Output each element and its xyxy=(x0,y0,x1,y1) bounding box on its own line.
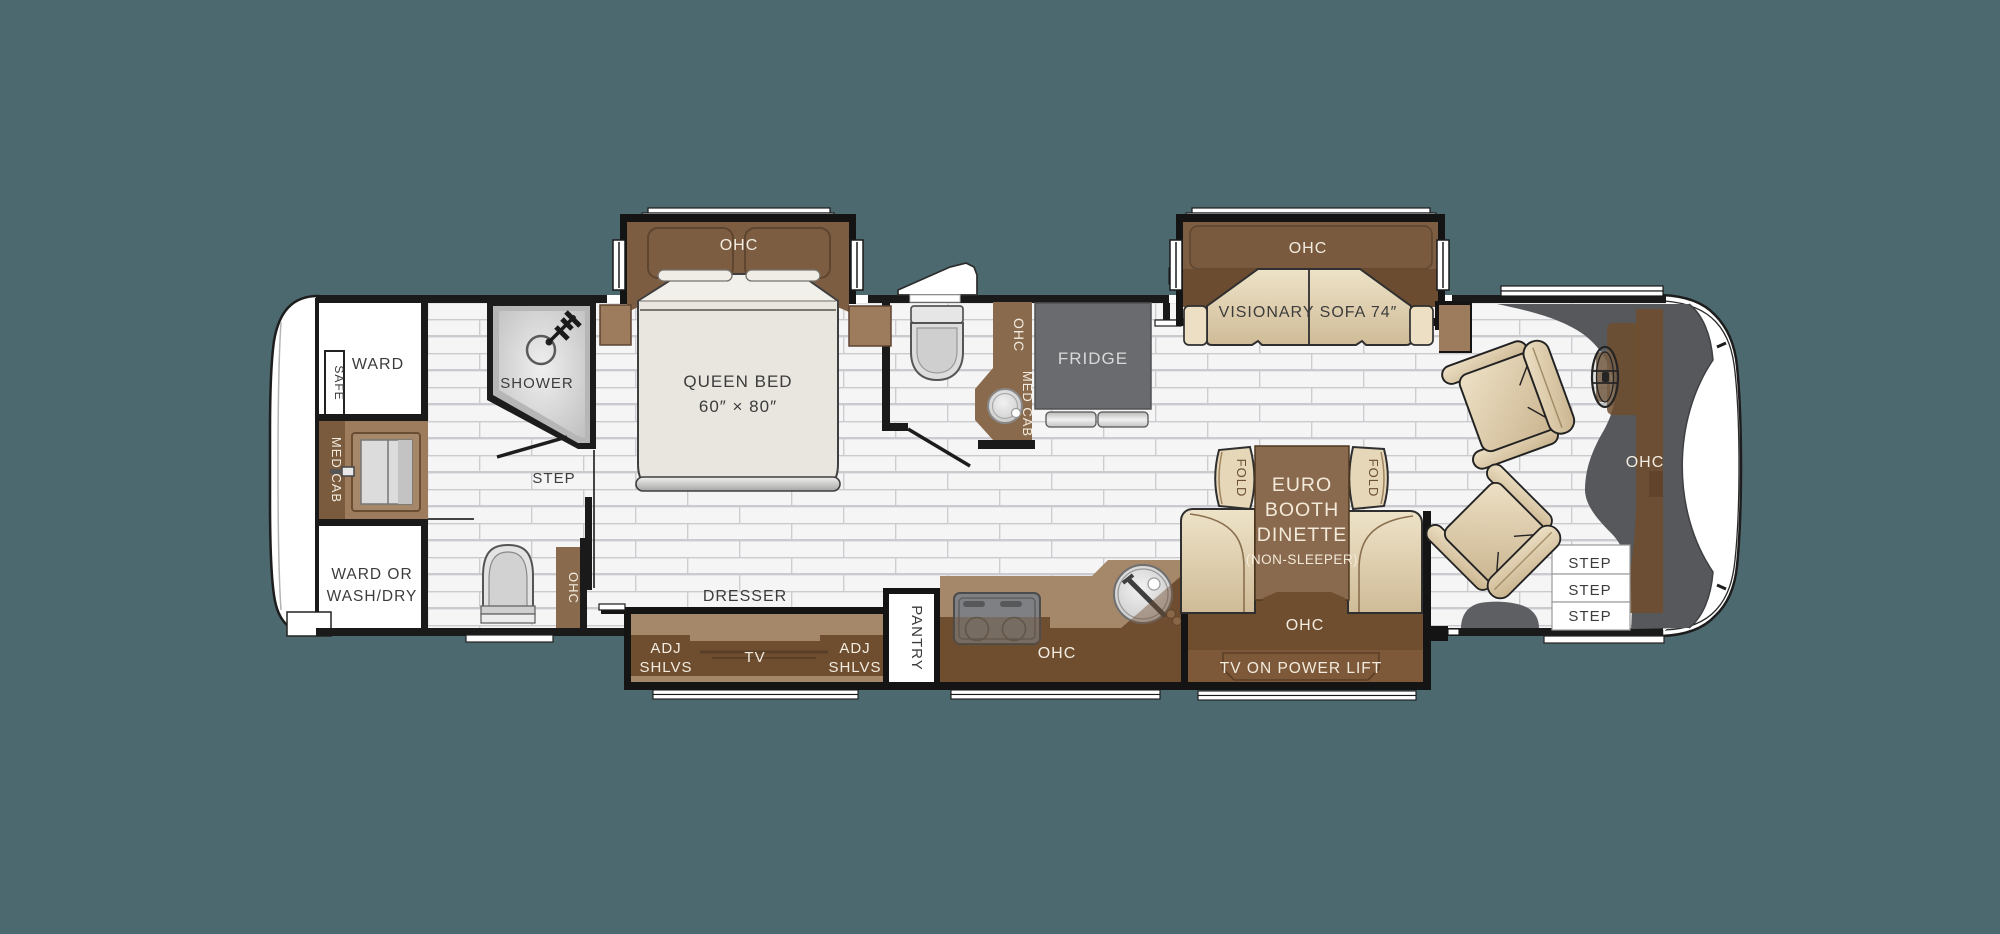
svg-text:FOLD: FOLD xyxy=(1366,459,1381,498)
svg-text:OHC: OHC xyxy=(566,572,581,604)
svg-text:PANTRY: PANTRY xyxy=(908,605,925,670)
svg-text:BOOTH: BOOTH xyxy=(1265,499,1339,521)
svg-text:OHC: OHC xyxy=(1626,454,1665,471)
svg-text:EURO: EURO xyxy=(1272,474,1332,496)
svg-text:60″ × 80″: 60″ × 80″ xyxy=(699,397,777,416)
svg-text:STEP: STEP xyxy=(532,470,575,487)
svg-text:VISIONARY SOFA 74″: VISIONARY SOFA 74″ xyxy=(1219,304,1398,321)
svg-text:SHOWER: SHOWER xyxy=(500,375,574,392)
svg-text:STEP: STEP xyxy=(1568,608,1611,625)
svg-text:WARD: WARD xyxy=(352,356,404,373)
svg-text:SAFE: SAFE xyxy=(332,365,346,400)
svg-text:SHLVS: SHLVS xyxy=(828,659,881,676)
svg-text:MED CAB: MED CAB xyxy=(1020,371,1035,437)
svg-text:(NON-SLEEPER): (NON-SLEEPER) xyxy=(1246,552,1358,567)
svg-text:QUEEN BED: QUEEN BED xyxy=(683,372,792,391)
svg-text:SHLVS: SHLVS xyxy=(639,659,692,676)
svg-text:WASH/DRY: WASH/DRY xyxy=(327,588,418,605)
svg-text:DINETTE: DINETTE xyxy=(1257,524,1347,546)
svg-text:ADJ: ADJ xyxy=(839,640,870,657)
svg-text:WARD OR: WARD OR xyxy=(331,566,412,583)
svg-text:FRIDGE: FRIDGE xyxy=(1058,349,1128,368)
svg-text:TV: TV xyxy=(744,649,765,666)
svg-text:TV ON POWER LIFT: TV ON POWER LIFT xyxy=(1220,660,1382,677)
svg-text:STEP: STEP xyxy=(1568,555,1611,572)
svg-text:STEP: STEP xyxy=(1568,582,1611,599)
svg-text:ADJ: ADJ xyxy=(650,640,681,657)
svg-text:OHC: OHC xyxy=(1011,318,1027,352)
svg-text:OHC: OHC xyxy=(1286,617,1325,634)
svg-text:OHC: OHC xyxy=(1289,240,1328,257)
svg-text:FOLD: FOLD xyxy=(1234,459,1249,498)
svg-text:DRESSER: DRESSER xyxy=(703,588,787,605)
svg-text:OHC: OHC xyxy=(1038,645,1077,662)
svg-text:OHC: OHC xyxy=(720,237,759,254)
